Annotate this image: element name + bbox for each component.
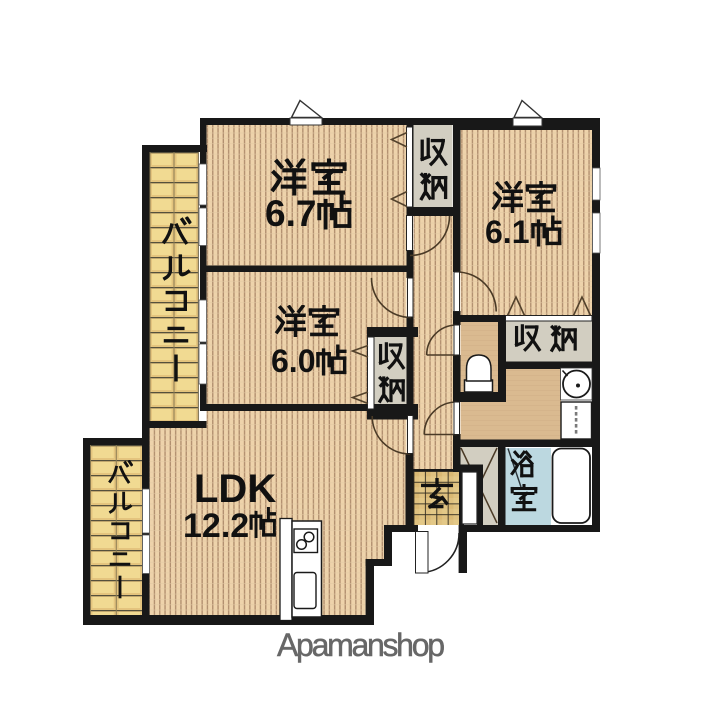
svg-text:Apamanshop: Apamanshop [277,627,445,663]
svg-text:12.2: 12.2 [183,507,249,545]
svg-text:6.7: 6.7 [265,193,316,234]
svg-text:6.0: 6.0 [271,343,315,379]
svg-text:LDK: LDK [194,467,276,511]
svg-text:6.1: 6.1 [485,214,529,250]
